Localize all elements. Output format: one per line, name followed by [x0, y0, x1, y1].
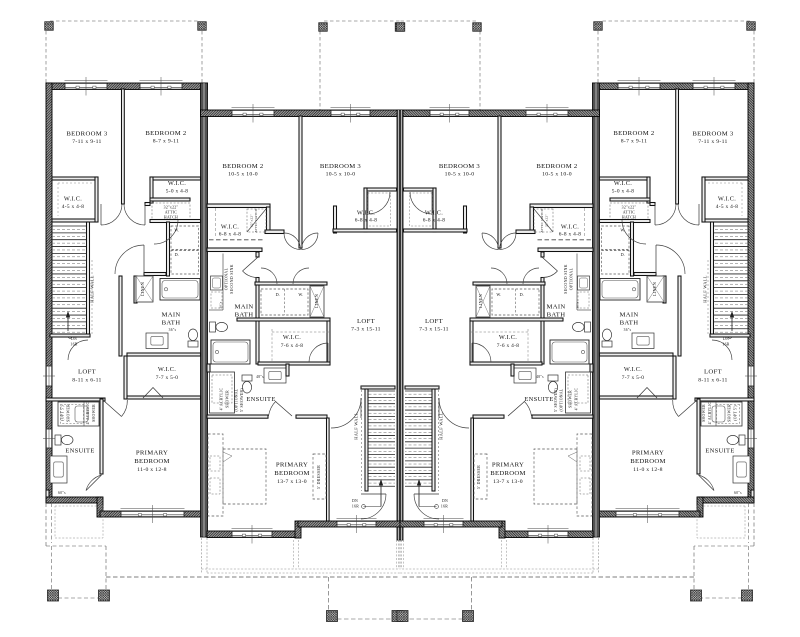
svg-text:4' ACRYLIC: 4' ACRYLIC	[708, 401, 712, 424]
svg-text:(OPTIONAL: (OPTIONAL	[235, 388, 239, 411]
svg-text:SHOWER: SHOWER	[569, 390, 573, 408]
svg-text:6-8 x 4-8: 6-8 x 4-8	[423, 218, 445, 224]
svg-text:DN: DN	[71, 337, 77, 341]
svg-text:BEDROOM 2: BEDROOM 2	[222, 163, 263, 170]
svg-text:6-8 x 4-8: 6-8 x 4-8	[355, 218, 377, 224]
svg-text:DN: DN	[723, 337, 729, 341]
svg-text:W.I.C.: W.I.C.	[64, 196, 82, 203]
svg-text:7-7 x 5-0: 7-7 x 5-0	[622, 375, 644, 381]
svg-text:ENSUITE: ENSUITE	[524, 396, 553, 403]
svg-text:W.I.C.: W.I.C.	[357, 210, 375, 217]
svg-text:48"s: 48"s	[536, 375, 544, 379]
svg-text:36"s: 36"s	[169, 328, 177, 332]
svg-text:W.I.C.: W.I.C.	[221, 224, 239, 231]
svg-text:SHOWER: SHOWER	[67, 404, 71, 422]
svg-text:PRIMARY: PRIMARY	[632, 450, 664, 457]
svg-text:BATH: BATH	[547, 312, 566, 319]
svg-text:BEDROOM: BEDROOM	[274, 470, 310, 477]
svg-text:LOFT: LOFT	[704, 369, 722, 376]
svg-text:D.: D.	[175, 252, 180, 257]
svg-text:SHOWER: SHOWER	[92, 404, 96, 422]
svg-text:5' SHOWER): 5' SHOWER)	[554, 388, 558, 412]
svg-text:6-8 x 4-8: 6-8 x 4-8	[559, 232, 581, 238]
svg-text:48"s: 48"s	[256, 375, 264, 379]
svg-text:60"s: 60"s	[734, 491, 742, 495]
svg-text:MAIN: MAIN	[619, 312, 638, 319]
svg-text:W.I.C.: W.I.C.	[614, 180, 632, 187]
svg-text:BEDROOM 3: BEDROOM 3	[439, 163, 481, 170]
svg-text:ATTIC: ATTIC	[165, 211, 177, 215]
svg-text:D.: D.	[621, 252, 626, 257]
svg-text:PRIMARY: PRIMARY	[136, 450, 168, 457]
svg-text:7-11 x 9-11: 7-11 x 9-11	[698, 139, 727, 145]
svg-text:7-7 x 5-0: 7-7 x 5-0	[156, 375, 178, 381]
svg-text:32"x22": 32"x22"	[164, 206, 179, 210]
svg-text:ATTIC: ATTIC	[623, 211, 635, 215]
svg-text:W.: W.	[298, 292, 303, 297]
svg-text:7-6 x 4-8: 7-6 x 4-8	[497, 343, 519, 349]
svg-text:32"x22": 32"x22"	[250, 214, 254, 227]
svg-text:BEDROOM: BEDROOM	[134, 458, 170, 465]
svg-text:10-5 x 10-0: 10-5 x 10-0	[326, 172, 356, 178]
svg-text:D.: D.	[276, 292, 281, 297]
svg-text:W.: W.	[620, 228, 625, 233]
svg-text:LOFT: LOFT	[78, 369, 96, 376]
svg-text:BEDROOM 2: BEDROOM 2	[613, 130, 654, 137]
svg-text:6-8 x 4-8: 6-8 x 4-8	[219, 232, 241, 238]
svg-text:36"s: 36"s	[624, 328, 632, 332]
svg-text:5' DRESSER: 5' DRESSER	[316, 465, 321, 489]
svg-text:HATCH: HATCH	[622, 216, 636, 220]
svg-text:10-5 x 10-0: 10-5 x 10-0	[445, 172, 475, 178]
svg-text:4-5 x 4-8: 4-5 x 4-8	[716, 204, 738, 210]
svg-text:W.I.C.: W.I.C.	[499, 334, 517, 341]
svg-text:BEDROOM 3: BEDROOM 3	[320, 163, 362, 170]
svg-text:ENSUITE: ENSUITE	[705, 448, 734, 455]
svg-text:36"s: 36"s	[576, 301, 580, 309]
svg-text:5-0 x 4-8: 5-0 x 4-8	[612, 189, 634, 195]
svg-text:HALF WALL: HALF WALL	[354, 412, 359, 439]
svg-text:DN: DN	[352, 499, 358, 503]
svg-text:W.: W.	[174, 228, 179, 233]
svg-text:W.I.C.: W.I.C.	[168, 180, 186, 187]
svg-text:BEDROOM 3: BEDROOM 3	[692, 131, 734, 138]
svg-text:ENSUITE: ENSUITE	[246, 396, 275, 403]
svg-text:BATH: BATH	[162, 320, 181, 327]
svg-text:4-5 x 4-8: 4-5 x 4-8	[62, 204, 84, 210]
svg-text:PRIMARY: PRIMARY	[276, 462, 308, 469]
svg-text:13-7 x 13-0: 13-7 x 13-0	[493, 479, 523, 485]
svg-text:LOFT: LOFT	[425, 318, 443, 325]
svg-text:(OPTIONAL: (OPTIONAL	[560, 388, 564, 411]
svg-text:16R: 16R	[441, 505, 448, 509]
svg-text:HALF WALL: HALF WALL	[90, 275, 95, 302]
svg-text:SECOND SINK: SECOND SINK	[229, 264, 234, 294]
svg-text:PRIMARY: PRIMARY	[492, 462, 524, 469]
svg-text:(OPT 5'): (OPT 5')	[734, 405, 738, 421]
svg-text:SHOWER: SHOWER	[226, 390, 230, 408]
svg-text:8-11 x 6-11: 8-11 x 6-11	[72, 378, 101, 384]
svg-text:8-7 x 9-11: 8-7 x 9-11	[153, 139, 179, 145]
svg-text:SHOWER: SHOWER	[702, 404, 706, 422]
svg-text:ATTIC HATCH: ATTIC HATCH	[254, 208, 258, 233]
svg-text:MAIN: MAIN	[161, 312, 180, 319]
svg-text:LINEN: LINEN	[478, 294, 483, 308]
svg-text:BEDROOM 3: BEDROOM 3	[66, 131, 108, 138]
svg-text:7-6 x 4-8: 7-6 x 4-8	[281, 343, 303, 349]
svg-text:8-7 x 9-11: 8-7 x 9-11	[621, 139, 647, 145]
svg-text:10-5 x 10-0: 10-5 x 10-0	[228, 172, 258, 178]
svg-text:7-3 x 15-11: 7-3 x 15-11	[351, 327, 381, 333]
svg-text:SECOND SINK: SECOND SINK	[563, 264, 568, 294]
svg-text:16R: 16R	[70, 343, 77, 347]
svg-text:OPTIONAL: OPTIONAL	[569, 268, 574, 291]
svg-text:11-0 x 12-8: 11-0 x 12-8	[137, 467, 167, 473]
svg-text:60"s: 60"s	[58, 491, 66, 495]
svg-text:HALF WALL: HALF WALL	[703, 275, 708, 302]
svg-text:11-0 x 12-8: 11-0 x 12-8	[633, 467, 663, 473]
svg-text:BATH: BATH	[620, 320, 639, 327]
svg-text:MAIN: MAIN	[546, 304, 565, 311]
svg-text:36"s: 36"s	[219, 301, 223, 309]
svg-text:4' ACRYLIC: 4' ACRYLIC	[220, 387, 224, 410]
svg-text:4' ACRYLIC: 4' ACRYLIC	[86, 401, 90, 424]
svg-text:8-11 x 6-11: 8-11 x 6-11	[698, 378, 727, 384]
svg-text:ATTIC HATCH: ATTIC HATCH	[540, 208, 544, 233]
svg-text:5-0 x 4-8: 5-0 x 4-8	[166, 189, 188, 195]
svg-text:HALF WALL: HALF WALL	[439, 412, 444, 439]
svg-text:(OPT 5'): (OPT 5')	[61, 405, 65, 421]
svg-text:32"x22": 32"x22"	[545, 214, 549, 227]
svg-text:W.I.C.: W.I.C.	[425, 210, 443, 217]
svg-text:OPTIONAL: OPTIONAL	[224, 268, 229, 291]
svg-text:SHOWER: SHOWER	[728, 404, 732, 422]
svg-text:D.: D.	[520, 292, 525, 297]
svg-text:BEDROOM: BEDROOM	[630, 458, 666, 465]
svg-text:4' ACRYLIC: 4' ACRYLIC	[575, 387, 579, 410]
svg-text:W.I.C.: W.I.C.	[624, 366, 642, 373]
svg-text:W.I.C.: W.I.C.	[158, 366, 176, 373]
svg-text:BEDROOM: BEDROOM	[490, 470, 526, 477]
svg-text:W.: W.	[496, 292, 501, 297]
svg-text:ENSUITE: ENSUITE	[65, 448, 94, 455]
svg-text:W.I.C.: W.I.C.	[718, 196, 736, 203]
svg-text:LINEN: LINEN	[140, 282, 145, 296]
svg-text:HATCH: HATCH	[164, 216, 178, 220]
svg-text:32"x22": 32"x22"	[622, 206, 637, 210]
svg-text:16R: 16R	[722, 343, 729, 347]
svg-text:13-7 x 13-0: 13-7 x 13-0	[277, 479, 307, 485]
svg-text:LINEN: LINEN	[314, 294, 319, 308]
svg-text:16R: 16R	[352, 505, 359, 509]
svg-text:BATH: BATH	[235, 312, 254, 319]
svg-text:W.I.C.: W.I.C.	[283, 334, 301, 341]
svg-text:DN: DN	[442, 499, 448, 503]
svg-text:BEDROOM 2: BEDROOM 2	[536, 163, 577, 170]
svg-text:BEDROOM 2: BEDROOM 2	[145, 130, 186, 137]
svg-text:W.I.C.: W.I.C.	[561, 224, 579, 231]
svg-text:5' SHOWER): 5' SHOWER)	[240, 388, 244, 412]
svg-text:LINEN: LINEN	[652, 282, 657, 296]
svg-text:7-11 x 9-11: 7-11 x 9-11	[72, 139, 101, 145]
svg-text:LOFT: LOFT	[357, 318, 375, 325]
svg-text:7-3 x 15-11: 7-3 x 15-11	[419, 327, 449, 333]
svg-text:MAIN: MAIN	[234, 304, 253, 311]
svg-text:5' DRESSER: 5' DRESSER	[476, 465, 481, 489]
svg-text:10-5 x 10-0: 10-5 x 10-0	[542, 172, 572, 178]
